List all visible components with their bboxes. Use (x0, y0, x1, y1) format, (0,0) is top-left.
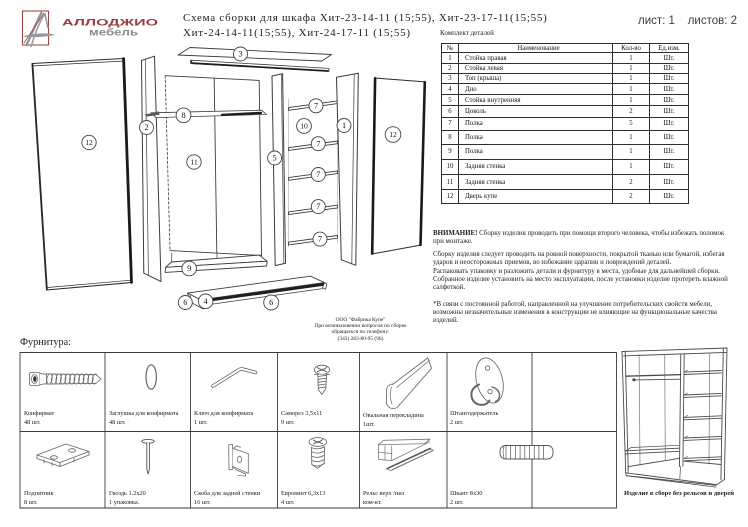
svg-text:11: 11 (190, 158, 198, 167)
svg-text:6: 6 (183, 298, 187, 307)
svg-text:8: 8 (181, 111, 185, 120)
svg-text:12: 12 (389, 130, 397, 139)
svg-text:5: 5 (273, 154, 277, 163)
svg-text:7: 7 (316, 202, 320, 211)
svg-text:3: 3 (238, 50, 242, 59)
svg-text:10: 10 (300, 122, 308, 131)
svg-text:1: 1 (342, 121, 346, 130)
svg-text:7: 7 (318, 235, 322, 244)
svg-text:6: 6 (269, 298, 273, 307)
svg-text:7: 7 (316, 139, 320, 148)
svg-text:12: 12 (85, 138, 93, 147)
svg-text:7: 7 (316, 170, 320, 179)
svg-text:2: 2 (144, 123, 148, 132)
svg-text:9: 9 (187, 264, 191, 273)
svg-text:4: 4 (204, 297, 208, 306)
svg-text:7: 7 (314, 101, 318, 110)
